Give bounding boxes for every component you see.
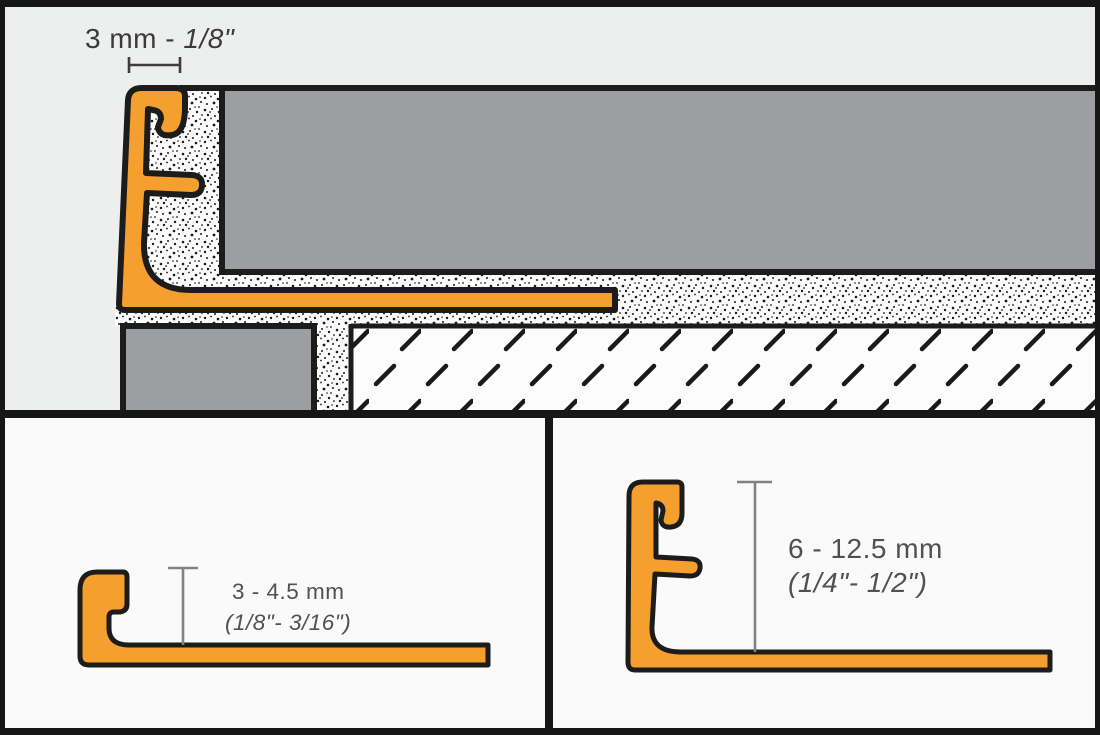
low-profile-drawing: 3 - 4.5 mm (1/8"- 3/16") [5, 418, 545, 728]
height-label-metric: 6 - 12.5 mm [788, 533, 943, 564]
substrate-hatch [351, 326, 1095, 410]
panel-tall-profile: 6 - 12.5 mm (1/4"- 1/2") [553, 418, 1095, 728]
mortar-joint-strip [314, 326, 350, 410]
panel-installation-view: 3 mm - 1/8" [5, 7, 1095, 410]
dimension-label: 3 mm - 1/8" [85, 23, 235, 54]
profile-diagram-page: { "top_panel": { "dim_prefix": "3 mm - "… [0, 0, 1100, 735]
existing-covering [123, 326, 314, 410]
tile [222, 88, 1095, 272]
installation-drawing: 3 mm - 1/8" [5, 7, 1095, 410]
panel-low-profile: 3 - 4.5 mm (1/8"- 3/16") [5, 418, 545, 728]
height-label-imperial: (1/4"- 1/2") [788, 567, 927, 598]
height-label-imperial: (1/8"- 3/16") [225, 610, 351, 635]
height-label-metric: 3 - 4.5 mm [232, 579, 345, 604]
tall-profile-drawing: 6 - 12.5 mm (1/4"- 1/2") [553, 418, 1095, 728]
